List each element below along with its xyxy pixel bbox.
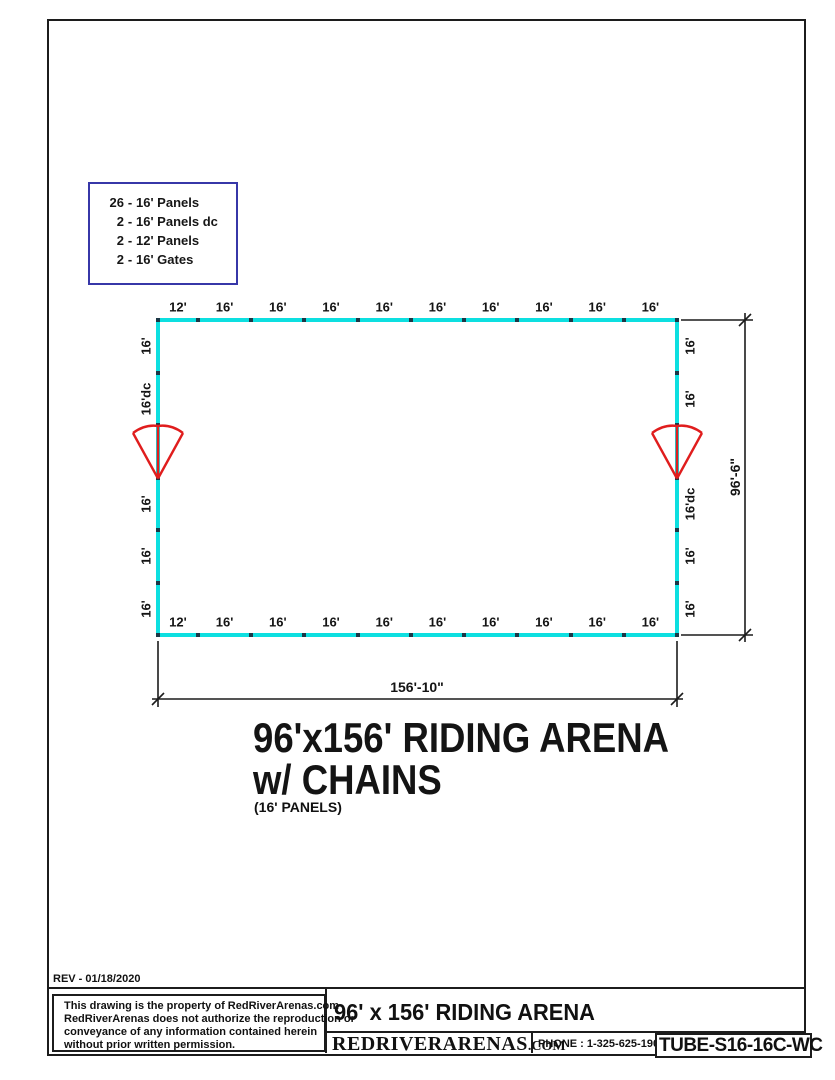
panel-length-label: 16': [322, 300, 340, 315]
panel-length-label: 16'dc: [683, 487, 698, 520]
panel-joint-tick: [675, 528, 679, 532]
panel-length-label: 16': [642, 615, 660, 630]
panel-length-label: 16': [139, 547, 154, 565]
panel-length-label: 16': [429, 300, 447, 315]
panel-length-label: 16': [269, 615, 287, 630]
panel-length-label: 16': [429, 615, 447, 630]
arena-top-rail: [158, 318, 677, 322]
panel-joint-tick: [249, 633, 253, 637]
panel-length-label: 16': [139, 337, 154, 355]
panel-joint-tick: [515, 633, 519, 637]
arena-bottom-rail: [158, 633, 677, 637]
width-dimension: 156'-10": [390, 679, 444, 695]
panel-length-label: 16': [269, 300, 287, 315]
panel-length-label: 16': [535, 300, 553, 315]
panel-joint-tick: [156, 633, 160, 637]
panel-joint-tick: [249, 318, 253, 322]
panel-joint-tick: [675, 633, 679, 637]
legal-line: without prior written permission.: [64, 1039, 318, 1052]
panel-length-label: 16': [683, 390, 698, 408]
drawing-title-line2: w/ CHAINS: [253, 756, 442, 804]
panel-joint-tick: [462, 318, 466, 322]
brand-text: REDRIVERARENAS: [332, 1033, 528, 1055]
panel-joint-tick: [409, 633, 413, 637]
panel-length-label: 12': [169, 300, 187, 315]
panel-length-label: 16': [683, 600, 698, 618]
panel-length-label: 16': [535, 615, 553, 630]
revision-date: REV - 01/18/2020: [53, 973, 140, 985]
titleblock-top-line: [48, 987, 804, 989]
part-number: TUBE-S16-16C-WC: [659, 1035, 823, 1056]
legal-line: RedRiverArenas does not authorize the re…: [64, 1013, 318, 1026]
panel-joint-tick: [302, 633, 306, 637]
height-dimension: 96'-6": [727, 458, 743, 496]
legal-line: conveyance of any information contained …: [64, 1026, 318, 1039]
panel-length-label: 16': [216, 300, 234, 315]
panel-joint-tick: [569, 318, 573, 322]
panel-joint-tick: [569, 633, 573, 637]
panel-length-label: 16': [482, 300, 500, 315]
panel-length-label: 16': [642, 300, 660, 315]
panel-joint-tick: [675, 581, 679, 585]
phone-number: PHONE : 1-325-625-1900: [538, 1038, 665, 1050]
panel-length-label: 16': [216, 615, 234, 630]
legal-line: This drawing is the property of RedRiver…: [64, 1000, 318, 1013]
panel-joint-tick: [156, 581, 160, 585]
panel-length-label: 16'dc: [139, 382, 154, 415]
panel-joint-tick: [356, 633, 360, 637]
panel-joint-tick: [196, 633, 200, 637]
panel-length-label: 12': [169, 615, 187, 630]
panel-joint-tick: [156, 371, 160, 375]
legal-notice: This drawing is the property of RedRiver…: [52, 994, 326, 1052]
panel-joint-tick: [356, 318, 360, 322]
drawing-sheet: 26 - 16' Panels 2 - 16' Panels dc 2 - 12…: [0, 0, 835, 1080]
panel-length-label: 16': [139, 600, 154, 618]
panel-joint-tick: [622, 633, 626, 637]
panel-joint-tick: [156, 318, 160, 322]
part-number-box: TUBE-S16-16C-WC: [655, 1033, 812, 1058]
panel-length-label: 16': [375, 615, 393, 630]
panel-joint-tick: [409, 318, 413, 322]
panel-length-label: 16': [683, 547, 698, 565]
panel-joint-tick: [156, 528, 160, 532]
panel-joint-tick: [622, 318, 626, 322]
drawing-title-line1: 96'x156' RIDING ARENA: [253, 714, 669, 762]
panel-length-label: 16': [375, 300, 393, 315]
panel-joint-tick: [462, 633, 466, 637]
panel-joint-tick: [515, 318, 519, 322]
gate-swing-icon: [645, 422, 709, 483]
panel-length-label: 16': [683, 337, 698, 355]
panel-joint-tick: [675, 318, 679, 322]
panel-length-label: 16': [588, 300, 606, 315]
drawing-title-note: (16' PANELS): [254, 799, 342, 815]
panel-length-label: 16': [139, 495, 154, 513]
panel-length-label: 16': [588, 615, 606, 630]
panel-joint-tick: [302, 318, 306, 322]
brand-name: REDRIVERARENAS.COM: [332, 1033, 566, 1056]
panel-length-label: 16': [482, 615, 500, 630]
panel-length-label: 16': [322, 615, 340, 630]
gate-swing-icon: [126, 422, 190, 483]
panel-joint-tick: [196, 318, 200, 322]
titleblock-drawing-title: 96' x 156' RIDING ARENA: [334, 999, 595, 1026]
arena-plan: 12'12'16'16'16'16'16'16'16'16'16'16'16'1…: [0, 0, 835, 1080]
panel-joint-tick: [675, 371, 679, 375]
